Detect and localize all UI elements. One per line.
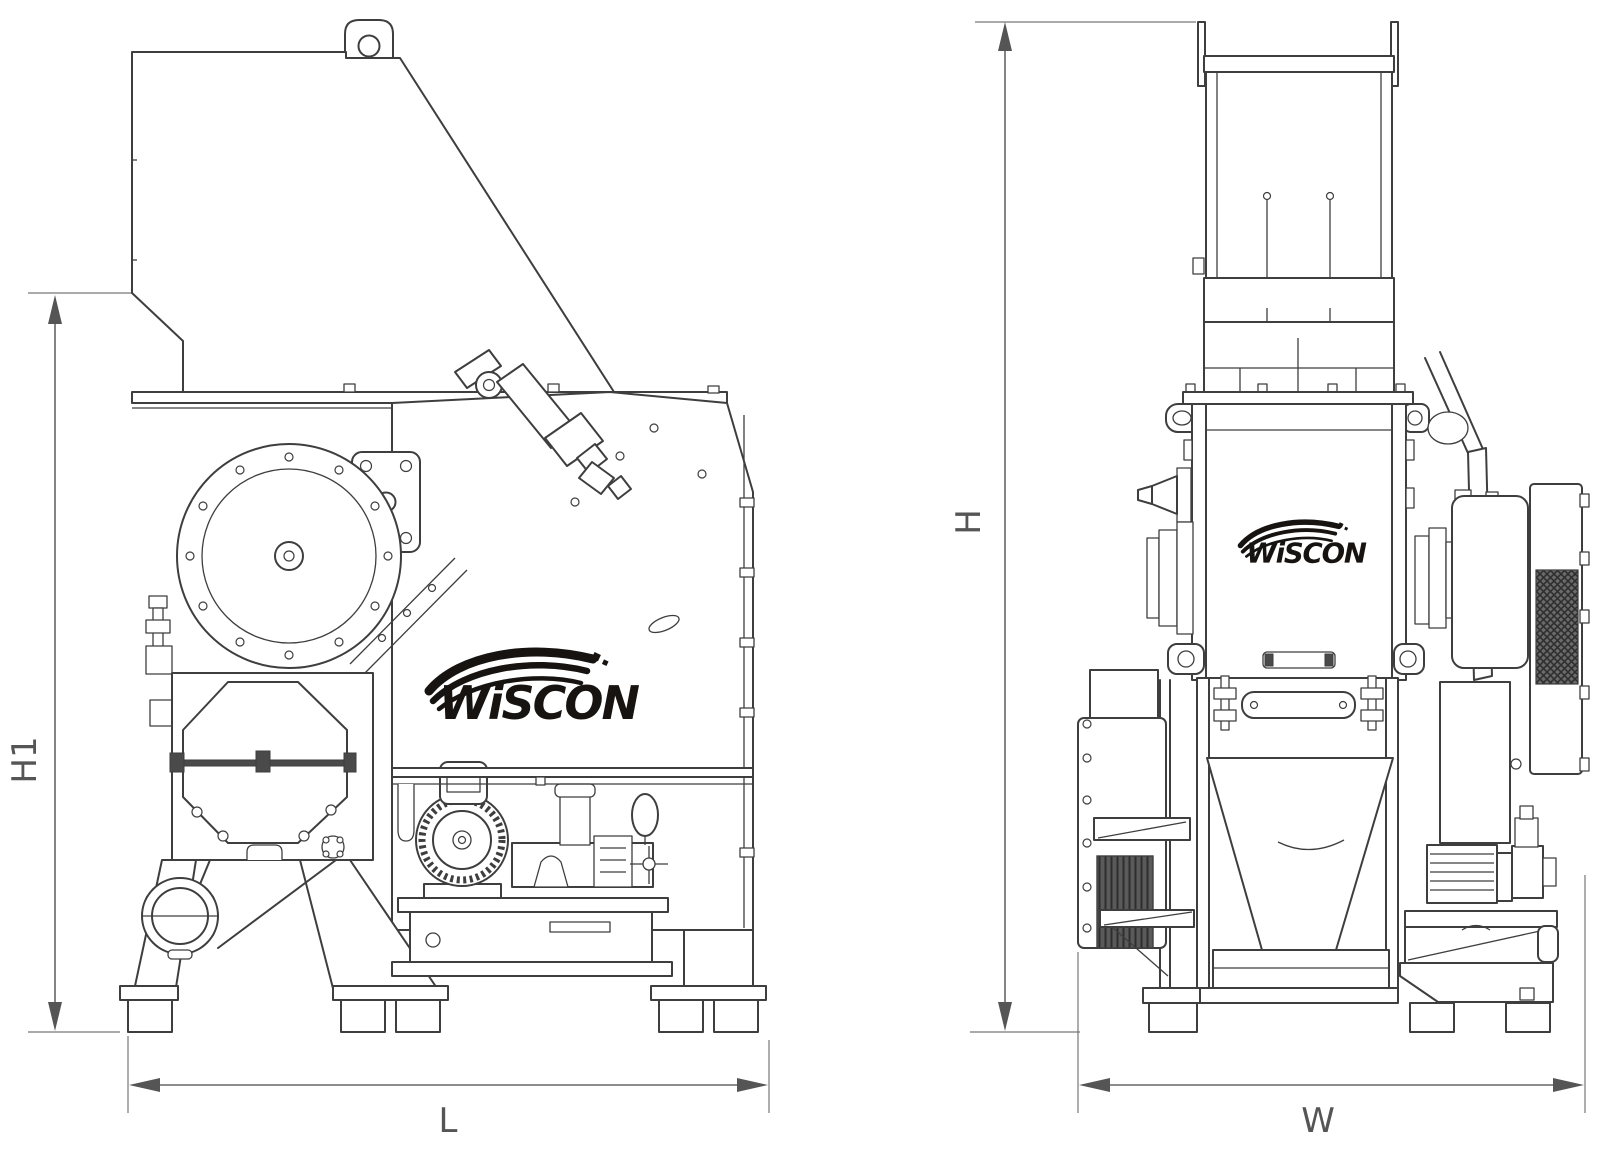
- dimension-l-label: L: [439, 1101, 458, 1141]
- machine-feet-side: [1149, 1003, 1550, 1032]
- side-view: H W: [949, 22, 1589, 1141]
- dimension-h1-label: H1: [5, 736, 45, 783]
- dimension-h1: H1: [5, 293, 132, 1032]
- rotor-housing: [177, 444, 401, 668]
- feed-hopper-side: [1193, 22, 1398, 392]
- discharge-box: [170, 673, 373, 860]
- granulator-drawing: WiSCON H1 L: [0, 0, 1600, 1165]
- front-view: H1 L: [5, 20, 769, 1141]
- dimension-l: L: [128, 1036, 769, 1141]
- dimension-h-label: H: [949, 509, 989, 535]
- dimension-w-label: W: [1301, 1101, 1335, 1141]
- belt-guard: [1078, 670, 1194, 990]
- machine-feet-front: [120, 986, 766, 1032]
- left-jack-screw: [146, 596, 172, 726]
- feed-hopper: [132, 52, 614, 392]
- technical-drawing: WiSCON H1 L: [0, 0, 1600, 1165]
